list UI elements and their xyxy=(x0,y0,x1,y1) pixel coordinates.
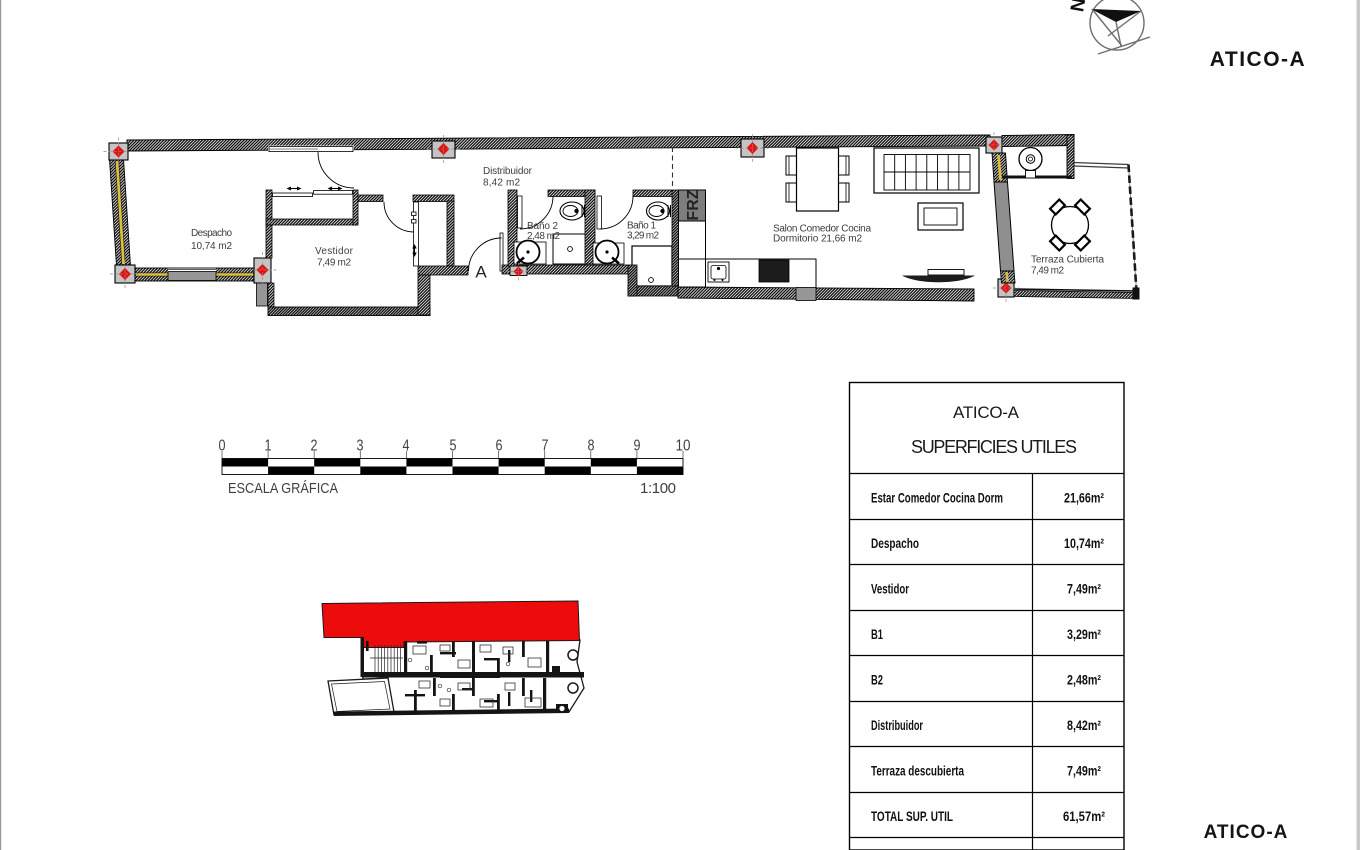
svg-text:ATICO-A: ATICO-A xyxy=(1210,48,1306,71)
svg-text:Terraza Cubierta: Terraza Cubierta xyxy=(1031,255,1104,266)
svg-text:3,29m²: 3,29m² xyxy=(1067,626,1101,642)
svg-text:SUPERFICIES UTILES: SUPERFICIES UTILES xyxy=(911,437,1077,457)
svg-text:10,74m²: 10,74m² xyxy=(1064,535,1104,551)
svg-text:ATICO-A: ATICO-A xyxy=(953,403,1020,422)
svg-text:N: N xyxy=(1065,0,1088,13)
svg-text:8,42m²: 8,42m² xyxy=(1067,717,1101,733)
svg-text:2,48 m2: 2,48 m2 xyxy=(527,231,560,242)
svg-text:1:100: 1:100 xyxy=(640,480,676,497)
svg-text:5: 5 xyxy=(450,438,457,455)
svg-text:8,42 m2: 8,42 m2 xyxy=(483,178,520,189)
svg-text:Distribuidor: Distribuidor xyxy=(871,717,923,733)
svg-text:Dormitorio 21,66 m2: Dormitorio 21,66 m2 xyxy=(773,234,862,245)
svg-text:10,74 m2: 10,74 m2 xyxy=(191,241,232,252)
svg-text:B1: B1 xyxy=(871,626,883,642)
svg-text:Distribuidor: Distribuidor xyxy=(483,166,533,177)
svg-text:Terraza descubierta: Terraza descubierta xyxy=(871,763,964,779)
svg-text:ESCALA GRÁFICA: ESCALA GRÁFICA xyxy=(228,480,338,497)
svg-text:7,49m²: 7,49m² xyxy=(1067,763,1101,779)
svg-text:Vestidor: Vestidor xyxy=(871,581,909,597)
svg-text:7,49 m2: 7,49 m2 xyxy=(317,258,351,269)
svg-text:Vestidor: Vestidor xyxy=(315,246,354,257)
svg-text:7,49m²: 7,49m² xyxy=(1067,581,1101,597)
svg-text:A: A xyxy=(475,263,487,282)
svg-text:B2: B2 xyxy=(871,672,883,688)
svg-text:TOTAL SUP. UTIL: TOTAL SUP. UTIL xyxy=(871,808,953,824)
svg-text:Despacho: Despacho xyxy=(191,228,232,239)
svg-text:Despacho: Despacho xyxy=(871,535,919,551)
svg-text:3,29 m2: 3,29 m2 xyxy=(627,231,659,242)
svg-text:7,49 m2: 7,49 m2 xyxy=(1031,266,1064,277)
svg-text:61,57m²: 61,57m² xyxy=(1063,808,1105,824)
svg-text:21,66m²: 21,66m² xyxy=(1064,490,1104,506)
svg-text:FRZ: FRZ xyxy=(685,189,702,220)
svg-text:ATICO-A: ATICO-A xyxy=(1204,822,1289,843)
svg-text:2,48m²: 2,48m² xyxy=(1067,672,1101,688)
svg-text:Estar Comedor Cocina Dorm: Estar Comedor Cocina Dorm xyxy=(871,490,1003,506)
